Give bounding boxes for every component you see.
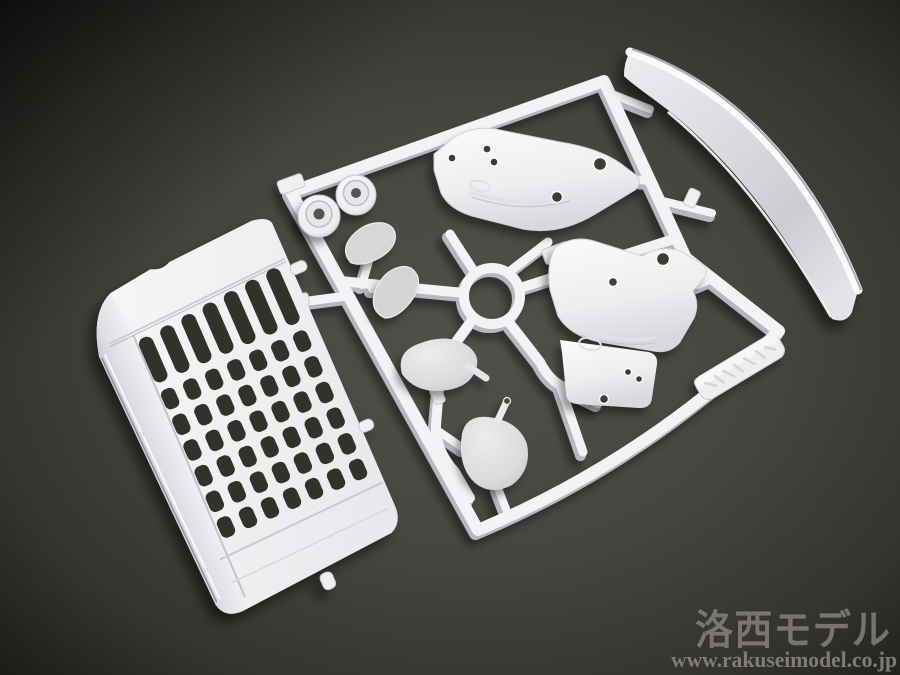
round-cap-1	[298, 195, 340, 237]
watermark-url: www.rakuseimodel.co.jp	[671, 647, 897, 672]
watermark: 洛西モデル www.rakuseimodel.co.jp	[671, 606, 897, 672]
round-cap-2	[336, 175, 376, 215]
photo-canvas: 洛西モデル www.rakuseimodel.co.jp	[0, 0, 900, 675]
